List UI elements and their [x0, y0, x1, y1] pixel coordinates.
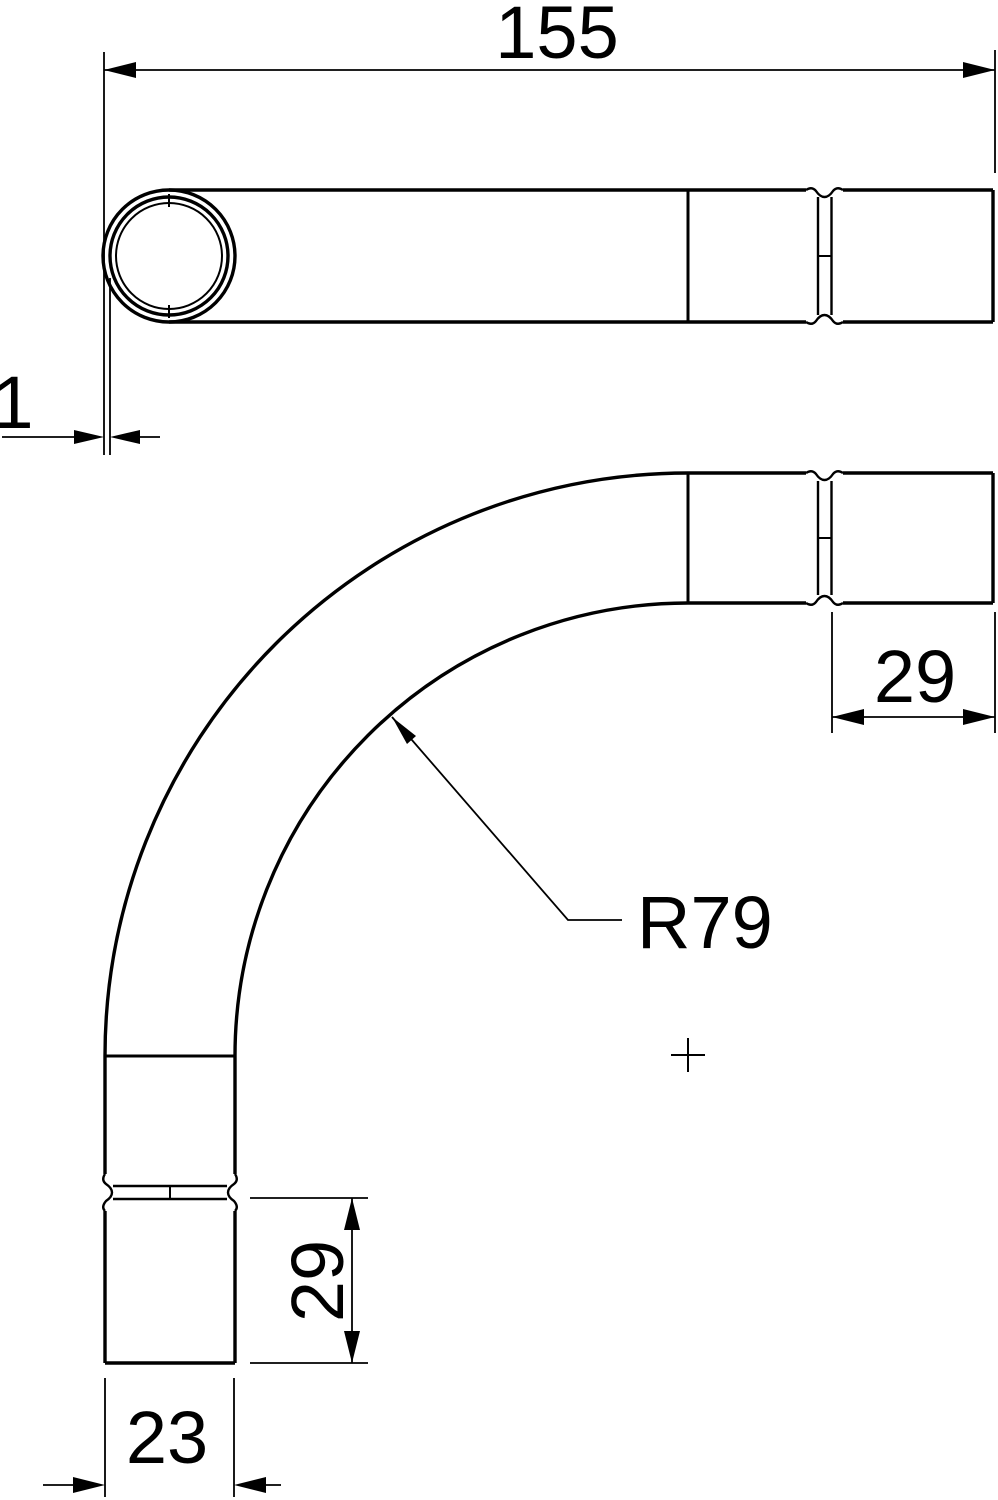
- bend-center-mark: [671, 1038, 705, 1072]
- arrowhead-right: [234, 1477, 266, 1493]
- arrowhead-left: [74, 430, 104, 444]
- pipe-end-outer-circle: [103, 190, 235, 322]
- bend-radius-label: R79: [637, 881, 773, 964]
- dimension-overall-length: 155: [104, 0, 995, 455]
- upper-bead-notch-top: [806, 471, 843, 480]
- overall-length-label: 155: [495, 0, 618, 74]
- arrowhead-right: [963, 62, 995, 78]
- top-view: [103, 188, 993, 324]
- wall-thickness-label: 1: [0, 361, 34, 444]
- pipe-end-middle-circle: [110, 197, 228, 315]
- arrowhead-top: [344, 1198, 360, 1230]
- bead-notch-top: [806, 188, 843, 197]
- pipe-end-inner-circle: [116, 203, 222, 309]
- bend-outer-arc: [105, 473, 688, 1056]
- upper-bead-notch-bottom: [806, 596, 843, 605]
- lower-bead-notch-right: [228, 1174, 237, 1211]
- dimension-outer-diameter: 23: [43, 1378, 281, 1497]
- socket-right-label: 29: [874, 635, 956, 718]
- dimension-socket-bottom: 29: [250, 1198, 368, 1363]
- bend-view: [103, 471, 993, 1363]
- dimension-socket-right: 29: [832, 612, 995, 733]
- outer-diameter-label: 23: [126, 1396, 208, 1479]
- bend-inner-arc: [235, 603, 688, 1056]
- arrowhead-left: [832, 709, 864, 725]
- socket-bottom-label: 29: [276, 1240, 359, 1322]
- arrowhead-right: [963, 709, 995, 725]
- dimension-bend-radius: R79: [392, 717, 773, 964]
- arrowhead-left: [104, 62, 136, 78]
- drawing-canvas: 155 1 R79: [0, 0, 998, 1500]
- radius-leader-line: [392, 717, 622, 920]
- bead-notch-bottom: [806, 315, 843, 324]
- technical-drawing: 155 1 R79: [0, 0, 998, 1500]
- arrowhead-left: [73, 1477, 105, 1493]
- lower-bead-notch-left: [103, 1174, 112, 1211]
- arrowhead-right: [110, 430, 140, 444]
- arrowhead-bottom: [344, 1331, 360, 1363]
